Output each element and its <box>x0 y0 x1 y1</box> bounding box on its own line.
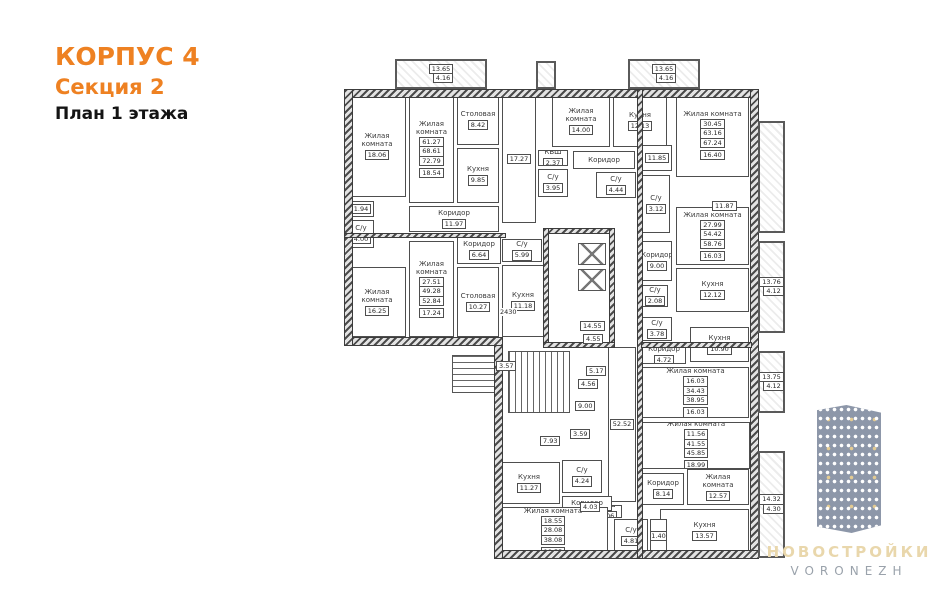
room: Кухня12.12 <box>676 268 749 312</box>
room: Жилая комната30.4563.1667.2416.40 <box>676 93 749 177</box>
room-label: С/у <box>650 194 661 202</box>
elevator-shaft <box>578 243 606 265</box>
room-label: Жилая комната <box>683 110 741 118</box>
apartment-stamp: 13.764.12 <box>759 278 784 297</box>
room-area: 8.42 <box>468 120 488 130</box>
room-label: Жилая комната <box>689 473 747 489</box>
room-label: Коридор <box>588 156 620 164</box>
balcony: 13.764.12 <box>758 241 785 333</box>
logo-title: НОВОСТРОЙКИ <box>760 543 938 561</box>
stamp-value: 38.95 <box>683 395 708 405</box>
room-label: С/у <box>355 224 366 232</box>
room-area: 12.57 <box>706 491 731 501</box>
wall <box>345 90 352 345</box>
room-area: 13.57 <box>692 531 717 541</box>
room-label: Коридор <box>647 479 679 487</box>
room-area: 18.99 <box>684 460 709 469</box>
dimension-label: 3.59 <box>570 429 590 439</box>
room: Жилая комната18.5528.0838.0818.55 <box>498 507 608 557</box>
stamp-value: 4.16 <box>656 73 676 83</box>
room-label: Жилая комната <box>411 260 452 276</box>
room-area: 12.12 <box>700 290 725 300</box>
room-area: 14.00 <box>569 125 594 135</box>
room-label: С/у <box>610 175 621 183</box>
room-area: 3.95 <box>543 183 563 193</box>
room-area: 16.03 <box>683 407 708 417</box>
balcony <box>758 121 785 233</box>
stamp-value: 72.79 <box>419 156 444 166</box>
room-area: 4.72 <box>654 355 674 364</box>
room-area: 18.06 <box>365 150 390 160</box>
room: Столовая8.42 <box>457 95 499 145</box>
logo-building-icon <box>817 405 881 533</box>
section-title: Секция 2 <box>55 77 200 98</box>
room-label: Кухня <box>518 473 540 481</box>
balcony <box>536 61 556 89</box>
floor-title: План 1 этажа <box>55 106 200 123</box>
wall <box>544 229 614 233</box>
room-area: 11.27 <box>517 483 542 493</box>
apartment-stamp: 27.5149.2852.84 <box>419 278 444 306</box>
room-label: Коридор <box>642 251 672 259</box>
apartment-stamp: 13.654.16 <box>429 65 454 84</box>
apartment-stamp: 16.0334.4338.95 <box>683 377 708 405</box>
room: С/у4.24 <box>562 460 602 493</box>
room-label: Жилая комната <box>524 507 582 515</box>
room: Жилая комната14.00 <box>552 95 610 147</box>
room-area: 8.14 <box>653 489 673 499</box>
room-label: С/у <box>625 526 636 534</box>
room-label: Коридор <box>648 347 680 353</box>
wall <box>345 338 502 345</box>
stamp-value: 45.85 <box>684 448 709 458</box>
room-label: Жилая комната <box>411 120 452 136</box>
room-area: 3.12 <box>646 204 666 214</box>
room: Коридор4.72 <box>642 347 686 364</box>
room: 52.52 <box>608 347 636 502</box>
room-label: Кухня <box>708 334 730 342</box>
dimension-label: 3.57 <box>496 361 516 371</box>
stamp-value: 52.84 <box>419 296 444 306</box>
stamp-value: 4.16 <box>433 73 453 83</box>
room-label: Кухня <box>467 165 489 173</box>
room-area: 17.24 <box>419 308 444 318</box>
balcony: 13.754.12 <box>758 351 785 413</box>
room-area: 9.00 <box>647 261 667 271</box>
dimension-label: 5.17 <box>586 366 606 376</box>
room: КВШ2.37 <box>538 150 568 166</box>
room-label: Жилая комната <box>667 422 725 428</box>
logo: НОВОСТРОЙКИ VORONEZH <box>760 405 938 578</box>
dimension-label: 7.93 <box>540 436 560 446</box>
wall <box>345 234 505 237</box>
room: Коридор6.64 <box>457 236 501 264</box>
room: Кухня11.18 <box>502 265 544 337</box>
room: Кухня13.57 <box>660 509 749 553</box>
wall <box>751 90 758 558</box>
room-area: 16.40 <box>700 150 725 160</box>
room: 11.85 <box>642 145 672 171</box>
room: Коридор11.97 <box>409 206 499 232</box>
elevator-shaft <box>578 269 606 291</box>
dimension-label: 4.03 <box>580 502 600 512</box>
stairs <box>508 351 570 413</box>
stairs <box>452 355 496 393</box>
room-area: 6.64 <box>469 250 489 260</box>
apartment-stamp: 30.4563.1667.24 <box>700 120 725 148</box>
room: С/у4.81 <box>614 519 648 553</box>
room: Коридор <box>573 151 635 169</box>
room-label: Кухня <box>512 291 534 299</box>
apartment-stamp: 13.754.12 <box>759 373 784 392</box>
room-area: 1.94 <box>351 204 371 214</box>
room: Жилая комната27.9954.4258.7616.03 <box>676 207 749 265</box>
room: Коридор9.00 <box>642 241 672 281</box>
room-label: Коридор <box>438 209 470 217</box>
room: С/у2.08 <box>642 285 668 307</box>
wall <box>638 90 642 558</box>
logo-subtitle: VORONEZH <box>760 564 938 578</box>
room: Жилая комната16.25 <box>348 267 406 337</box>
page: КОРПУС 4 Секция 2 План 1 этажа Жилая ком… <box>0 0 941 600</box>
room-area: 2.37 <box>543 158 563 166</box>
room: Коридор8.14 <box>642 473 684 505</box>
room: С/у4.44 <box>596 172 636 198</box>
title-block: КОРПУС 4 Секция 2 План 1 этажа <box>55 44 200 123</box>
room-area: 11.97 <box>442 219 467 229</box>
room: Жилая комната27.5149.2852.8417.24 <box>409 241 454 337</box>
room-area: 11.85 <box>645 153 670 163</box>
apartment-stamp: 11.5641.5545.85 <box>684 430 709 458</box>
room: Столовая10.27 <box>457 267 499 337</box>
room: Кухня11.27 <box>498 462 560 504</box>
balcony: 13.654.16 <box>395 59 487 89</box>
room: Кухня9.85 <box>457 148 499 203</box>
room-label: С/у <box>651 319 662 327</box>
room: С/у3.95 <box>538 169 568 197</box>
room-area: 10.27 <box>466 302 491 312</box>
room: С/у5.99 <box>502 239 542 262</box>
room-label: Столовая <box>461 110 496 118</box>
room-label: С/у <box>547 173 558 181</box>
room-label: Кухня <box>693 521 715 529</box>
dimension-label: 14.55 <box>580 321 605 331</box>
room-label: КВШ <box>544 150 561 156</box>
room: Жилая комната12.57 <box>687 469 749 505</box>
dimension-label: 2430 <box>500 308 517 316</box>
room-area: 52.52 <box>610 419 635 429</box>
wall <box>642 343 751 347</box>
room: С/у3.12 <box>642 175 670 233</box>
room: 17.27 <box>502 95 536 223</box>
room: 1.40 <box>650 519 667 553</box>
wall <box>495 345 502 558</box>
dimension-label: 4.56 <box>578 379 598 389</box>
stamp-value: 4.12 <box>763 381 783 391</box>
room-label: Коридор <box>463 240 495 248</box>
room-area: 16.25 <box>365 306 390 316</box>
apartment-stamp: 13.654.16 <box>652 65 677 84</box>
apartment-stamp: 61.2768.6172.79 <box>419 138 444 166</box>
apartment-stamp: 18.5528.0838.08 <box>541 517 566 545</box>
room-label: С/у <box>576 466 587 474</box>
room-area: 1.40 <box>650 531 667 541</box>
room-area: 5.99 <box>512 250 532 260</box>
room: Жилая комната16.0334.4338.9516.03 <box>642 367 749 418</box>
dimension-label: 4.55 <box>583 334 603 344</box>
stamp-value: 38.08 <box>541 535 566 545</box>
stamp-value: 4.12 <box>763 286 783 296</box>
room-label: Жилая комната <box>350 132 404 148</box>
room: Жилая комната61.2768.6172.7918.54 <box>409 95 454 203</box>
wall <box>610 229 614 347</box>
room-label: С/у <box>516 240 527 248</box>
room-area: 17.27 <box>507 154 532 164</box>
room: Жилая комната11.5641.5545.8518.99 <box>642 422 750 469</box>
room-label: Жилая комната <box>666 367 724 375</box>
room-area: 9.85 <box>468 175 488 185</box>
floor-plan: Жилая комната18.06Жилая комната61.2768.6… <box>330 55 792 569</box>
room-label: С/у <box>649 286 660 294</box>
apartment-stamp: 27.9954.4258.76 <box>700 221 725 249</box>
room-area: 2.08 <box>645 296 665 306</box>
room-area: 18.54 <box>419 168 444 178</box>
room-label: Кухня <box>701 280 723 288</box>
balcony: 13.654.16 <box>628 59 700 89</box>
room: С/у3.78 <box>642 317 672 341</box>
room-label: Столовая <box>461 292 496 300</box>
room-area: 4.44 <box>606 185 626 195</box>
room-label: Жилая комната <box>554 107 608 123</box>
wall <box>544 343 614 347</box>
room-area: 4.24 <box>572 476 592 486</box>
wall <box>544 229 548 347</box>
room-label: Жилая комната <box>350 288 404 304</box>
building-title: КОРПУС 4 <box>55 44 200 69</box>
dimension-label: 9.00 <box>575 401 595 411</box>
stamp-value: 67.24 <box>700 138 725 148</box>
dimension-label: 11.87 <box>712 201 737 211</box>
room-area: 3.78 <box>647 329 667 339</box>
wall <box>345 90 758 97</box>
room-label: Жилая комната <box>683 211 741 219</box>
room-area: 16.03 <box>700 251 725 261</box>
room: Жилая комната18.06 <box>348 95 406 197</box>
wall <box>495 551 758 558</box>
stamp-value: 58.76 <box>700 239 725 249</box>
